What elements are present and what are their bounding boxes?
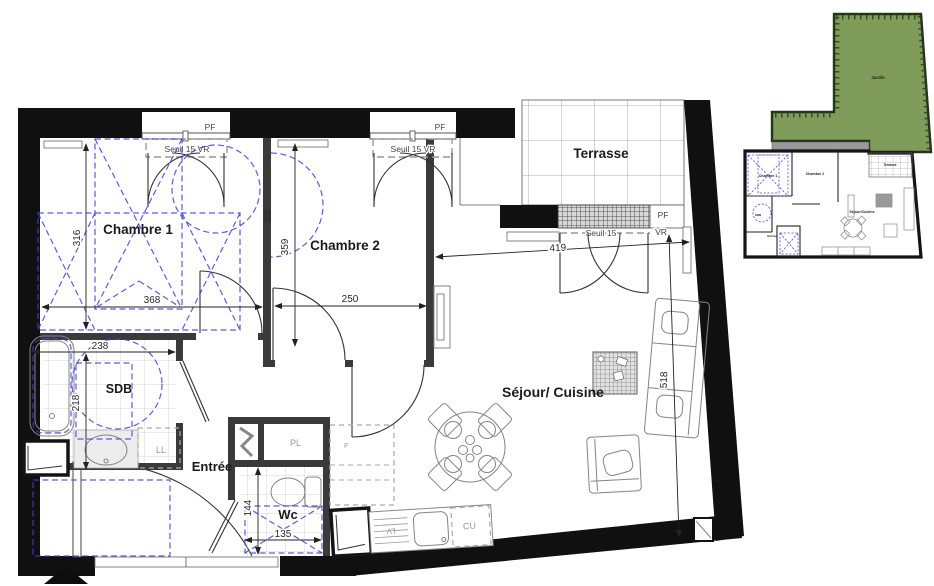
dim-chambre2-w: 250: [342, 294, 359, 305]
wall-chambre1-chambre2: [263, 138, 271, 367]
floor-plan-drawing: Terrasse: [0, 0, 934, 586]
dining-table: [427, 402, 512, 491]
sdb-vanity: [74, 430, 138, 468]
pf-label-chambre1: PF: [205, 122, 216, 132]
radiator-sejour: [507, 232, 559, 241]
room-label-entree: Entrée: [192, 459, 232, 474]
minimap-terrasse-label: Terrasse: [883, 163, 896, 167]
room-label-chambre1: Chambre 1: [103, 222, 173, 237]
dim-wc-w: 135: [275, 529, 292, 540]
wall-sdb-right-upper: [176, 340, 183, 361]
entree-clearance: [33, 480, 170, 556]
armchair: [587, 435, 642, 494]
french-door-chambre1: [148, 153, 200, 205]
minimap-chambre2-label: Chambre 2: [806, 172, 825, 176]
washing-machine-label: LL: [156, 445, 166, 455]
wall-below-terrasse-left: [500, 205, 558, 228]
entrance-door-leaf: [73, 462, 81, 557]
wall-chambre2-sejour: [426, 138, 434, 367]
dim-sdb-h: 218: [71, 394, 82, 411]
door-chambre1: [200, 271, 262, 333]
french-door-chambre2: [374, 153, 426, 205]
seuil-label-chambre1: Seuil 15 VR: [165, 144, 210, 154]
coat-rack-icon: [240, 428, 252, 456]
pf-label-chambre2: PF: [435, 122, 446, 132]
wall-right: [684, 100, 744, 541]
minimap: Jardin: [745, 14, 931, 257]
pf-label-terrasse: PF: [658, 210, 669, 220]
dim-sejour-w: 419: [549, 243, 567, 255]
dim-chambre2-h: 359: [280, 238, 291, 255]
terrasse-area: Terrasse: [522, 100, 684, 205]
seuil-label-chambre2: Seuil 15 VR: [391, 144, 436, 154]
wall-wc-right: [323, 417, 330, 556]
radiator-chambre1: [44, 141, 82, 148]
wall-wc-top: [228, 460, 330, 467]
room-label-wc: Wc: [278, 507, 298, 522]
cooker-label: CU: [463, 521, 477, 532]
tv-unit: [434, 286, 450, 348]
entrance-sill: [95, 557, 278, 567]
wall-bottom-mid: [280, 556, 356, 576]
room-label-sdb: SDB: [106, 382, 132, 396]
placard: PL: [240, 428, 301, 456]
dim-chambre1-w: 368: [144, 295, 161, 306]
vr-label-terrasse: VR: [655, 227, 667, 237]
floor-plan-page: Terrasse: [0, 0, 934, 586]
wall-placard-left: [228, 417, 235, 463]
wall-placard-divider: [258, 424, 264, 463]
minimap-sejour-label: Séjour/Cuisine: [849, 210, 874, 214]
wall-bottom-left: [18, 556, 95, 576]
radiator-sejour-right: [683, 227, 691, 273]
terrasse-threshold-grating: [558, 205, 650, 228]
minimap-entree-label: Entrée: [767, 234, 777, 238]
minimap-sdb-label: SDB: [755, 213, 762, 217]
seuil-label-terrasse: Seuil 15: [586, 228, 617, 238]
room-label-terrasse: Terrasse: [573, 146, 629, 161]
dim-chambre1-h: 316: [72, 229, 83, 246]
radiator-chambre2: [278, 140, 328, 147]
dim-sdb-w: 238: [92, 341, 109, 352]
wall-placard-top: [228, 417, 330, 424]
placard-label: PL: [290, 438, 301, 448]
minimap-chambre1-label: Chambre 1: [759, 174, 778, 178]
entrance-door-arc: [81, 463, 252, 556]
french-door-terrasse: [560, 233, 620, 293]
dim-sejour-h: 518: [659, 371, 671, 388]
dim-wc-h: 144: [243, 499, 254, 516]
door-chambre2: [273, 288, 345, 360]
fridge-label: F: [344, 441, 349, 450]
fridge-slot: F: [330, 425, 394, 505]
room-label-sejour: Séjour/ Cuisine: [502, 384, 604, 400]
minimap-garden: [772, 14, 931, 152]
chambre1-turning-circle: [172, 145, 260, 233]
door-sejour: [352, 365, 424, 437]
minimap-jardin-label: Jardin: [871, 75, 885, 80]
door-sdb: [180, 362, 206, 422]
room-labels: Chambre 1 Chambre 2 SDB Entrée Wc Séjour…: [103, 222, 604, 522]
wall-block: [264, 209, 271, 222]
door-wc: [209, 500, 235, 551]
dishwasher-label: LV: [386, 526, 396, 536]
room-label-chambre2: Chambre 2: [310, 238, 380, 253]
